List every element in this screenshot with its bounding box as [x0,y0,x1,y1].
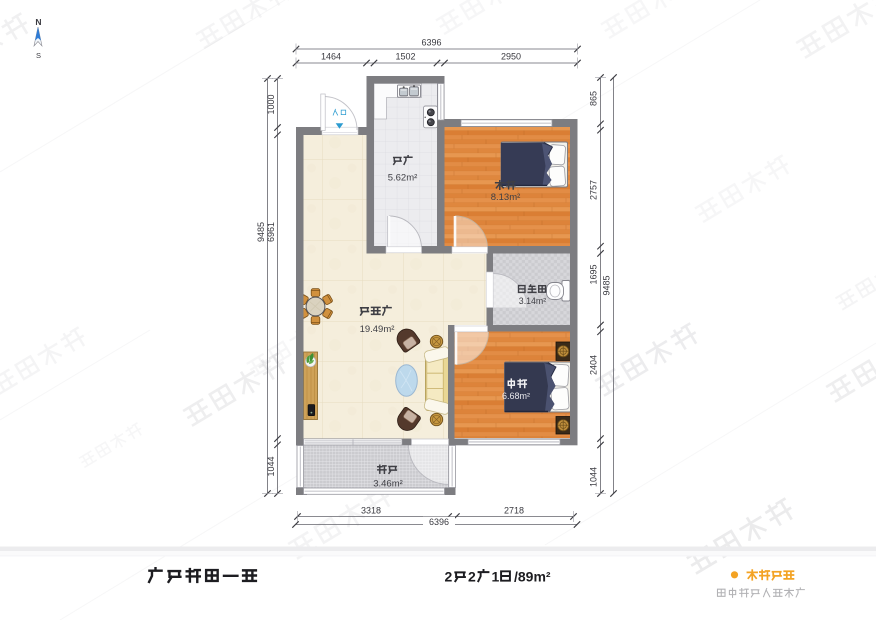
svg-text:1464: 1464 [321,52,341,62]
svg-text:1: 1 [492,569,500,585]
svg-text:2950: 2950 [501,52,521,62]
svg-text:9485: 9485 [602,275,612,295]
svg-text:5.62m²: 5.62m² [388,173,418,184]
svg-text:S: S [36,51,41,60]
svg-text:2: 2 [445,569,453,585]
svg-text:1502: 1502 [395,52,415,62]
svg-text:1044: 1044 [266,456,276,476]
svg-text:2757: 2757 [589,180,599,200]
svg-text:/89m²: /89m² [514,569,551,585]
svg-text:1000: 1000 [266,94,276,114]
svg-text:3318: 3318 [361,506,381,516]
svg-text:2: 2 [468,569,476,585]
svg-text:865: 865 [589,91,599,106]
svg-text:3.46m²: 3.46m² [373,479,403,490]
svg-text:2404: 2404 [589,355,599,375]
svg-text:8.13m²: 8.13m² [491,192,521,203]
svg-text:3.14m²: 3.14m² [519,296,546,306]
svg-text:1044: 1044 [589,467,599,487]
svg-text:6396: 6396 [421,38,441,48]
svg-text:2718: 2718 [504,506,524,516]
svg-text:9485: 9485 [256,222,266,242]
svg-text:19.49m²: 19.49m² [360,324,395,335]
svg-text:6396: 6396 [429,517,449,527]
svg-text:N: N [35,17,41,27]
svg-text:1695: 1695 [589,264,599,284]
svg-text:6.68m²: 6.68m² [502,391,530,401]
svg-text:6961: 6961 [266,222,276,242]
